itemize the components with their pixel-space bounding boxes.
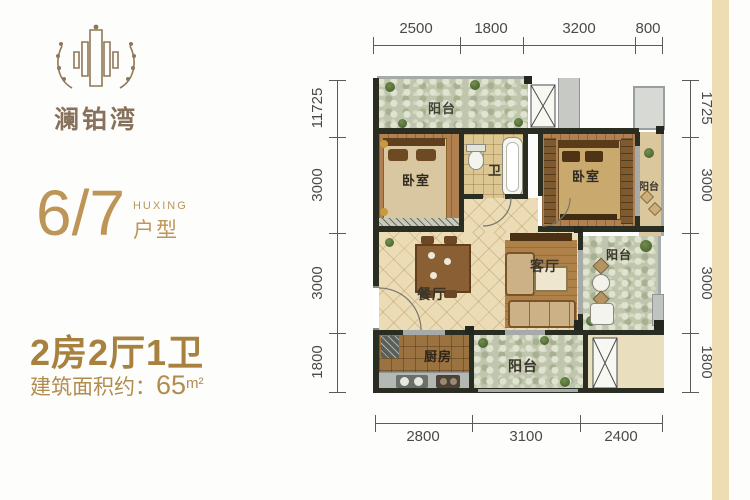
- dim-left-2: 3000: [309, 155, 327, 215]
- bed-headboard: [558, 140, 619, 148]
- wall: [445, 330, 505, 335]
- column: [524, 76, 532, 84]
- wall: [469, 334, 474, 392]
- dim-top-4: 800: [618, 20, 678, 38]
- unit-type-heading: 6/7 HUXING 户型: [36, 178, 188, 248]
- wall: [578, 232, 583, 250]
- plate-icon: [444, 258, 451, 265]
- wall: [523, 134, 528, 198]
- dim-line-left: [337, 80, 338, 392]
- pillow-icon: [585, 151, 603, 162]
- wall: [538, 134, 543, 196]
- plant-icon: [514, 118, 523, 127]
- sofa-icon: [508, 300, 576, 328]
- balcony-right-rail: [661, 132, 664, 236]
- wall: [635, 216, 640, 232]
- burner: [440, 378, 447, 385]
- room-label-balcony-right: 阳台: [639, 178, 659, 193]
- dim-bottom-1: 2800: [393, 428, 453, 446]
- lamp-icon: [380, 208, 388, 216]
- room-label-bath: 卫: [488, 160, 502, 179]
- pillow-icon: [416, 149, 436, 161]
- door-jamb: [373, 286, 379, 288]
- wall: [583, 334, 588, 392]
- area-value: 65: [156, 370, 186, 400]
- fridge-icon: [381, 336, 399, 358]
- unit-number: 6/7: [36, 178, 125, 248]
- dim-left-1: 11725: [309, 78, 327, 138]
- sink-bowl: [414, 377, 423, 386]
- room-label-dining: 餐厅: [417, 284, 447, 304]
- dim-tick: [662, 415, 663, 432]
- column: [574, 320, 583, 330]
- dim-tick: [523, 37, 524, 54]
- area-unit: m²: [186, 375, 204, 392]
- dim-tick: [329, 333, 346, 334]
- pillow-icon: [388, 149, 408, 161]
- wall: [459, 134, 464, 228]
- room-label-balcony-bottom: 阳台: [508, 356, 538, 376]
- column: [656, 126, 664, 134]
- balcony-top-rail: [377, 76, 528, 79]
- chair-icon: [421, 236, 434, 244]
- dim-top-1: 2500: [386, 20, 446, 38]
- dim-tick: [662, 37, 663, 54]
- wall: [545, 330, 664, 335]
- dim-tick: [329, 137, 346, 138]
- column: [654, 320, 664, 330]
- tv-console-icon: [510, 233, 572, 241]
- plate-icon: [428, 252, 435, 259]
- dim-tick: [682, 392, 699, 393]
- brand-logo-icon: [48, 22, 144, 100]
- dim-left-4: 1800: [309, 332, 327, 392]
- plant-icon: [385, 238, 394, 247]
- wall: [463, 194, 483, 199]
- wall: [373, 128, 560, 134]
- wall: [538, 226, 664, 232]
- room-label-kitchen: 厨房: [424, 346, 452, 365]
- door-jamb: [373, 328, 379, 330]
- plant-icon: [470, 80, 480, 90]
- plant-icon: [398, 119, 407, 128]
- wall: [635, 132, 640, 146]
- column: [574, 226, 583, 233]
- dim-tick: [329, 80, 346, 81]
- shower-tray: [590, 303, 614, 325]
- wardrobe-icon: [544, 138, 556, 224]
- window: [578, 250, 583, 314]
- dim-line-top: [373, 45, 662, 46]
- dim-left-3: 3000: [309, 253, 327, 313]
- dim-tick: [580, 415, 581, 432]
- dim-tick: [460, 37, 461, 54]
- unit-label-cn: 户型: [133, 214, 188, 244]
- window: [635, 146, 640, 216]
- plant-icon: [478, 338, 488, 348]
- room-label-living: 客厅: [530, 256, 560, 276]
- dim-line-right: [690, 80, 691, 392]
- room-label-bedroom-left: 卧室: [402, 170, 430, 189]
- bed-bench: [560, 214, 617, 220]
- wall: [373, 78, 379, 392]
- pillow-icon: [562, 151, 580, 162]
- column: [465, 326, 474, 335]
- area-line: 建筑面积约：65m²: [30, 370, 204, 401]
- wall: [373, 330, 403, 335]
- dim-top-2: 1800: [461, 20, 521, 38]
- dim-tick: [373, 37, 374, 54]
- plant-icon: [560, 377, 570, 387]
- rooms-summary: 2房2厅1卫: [30, 324, 204, 376]
- dim-tick: [375, 415, 376, 432]
- plant-icon: [644, 148, 654, 158]
- plant-icon: [640, 240, 652, 252]
- bathtub-inner: [506, 142, 519, 192]
- shaft-flue-icon: [530, 84, 556, 128]
- side-stripe: [712, 0, 729, 500]
- chair-icon: [444, 236, 457, 244]
- dim-bottom-3: 2400: [591, 428, 651, 446]
- plant-icon: [540, 336, 549, 345]
- room-label-balcony-garden: 阳台: [606, 246, 632, 263]
- dim-tick: [682, 233, 699, 234]
- room-label-balcony-top: 阳台: [428, 98, 456, 117]
- dim-tick: [329, 392, 346, 393]
- entry-opening: [373, 288, 379, 328]
- burner: [450, 378, 457, 385]
- ac-platform: [633, 86, 665, 130]
- wall: [505, 194, 528, 199]
- sink-bowl: [400, 377, 409, 386]
- balcony-bottom-rail: [478, 389, 578, 392]
- balcony-door: [505, 330, 545, 335]
- plate-icon: [430, 272, 437, 279]
- dim-line-bottom: [375, 423, 662, 424]
- lamp-icon: [380, 140, 388, 148]
- wall: [556, 128, 639, 134]
- plant-icon: [385, 82, 395, 92]
- dim-top-3: 3200: [549, 20, 609, 38]
- toilet-tank: [466, 144, 486, 152]
- dim-tick: [329, 233, 346, 234]
- duct-ledge: [558, 78, 580, 132]
- dim-tick: [635, 37, 636, 54]
- room-label-bedroom-right: 卧室: [572, 166, 600, 185]
- garden-table-icon: [592, 274, 610, 292]
- toilet-icon: [468, 150, 484, 170]
- wall: [373, 226, 464, 232]
- shaft-flue-icon: [592, 337, 618, 389]
- dim-bottom-2: 3100: [496, 428, 556, 446]
- wardrobe-icon: [621, 138, 633, 224]
- unit-label-en: HUXING: [133, 200, 188, 212]
- area-prefix: 建筑面积约：: [30, 376, 156, 399]
- dim-tick: [472, 415, 473, 432]
- brand-name: 澜铂湾: [40, 100, 152, 136]
- hallway: [463, 198, 538, 232]
- bed-headboard: [383, 138, 445, 146]
- floorplan-poster: 澜铂湾 6/7 HUXING 户型 2房2厅1卫 建筑面积约：65m² 2500…: [0, 0, 750, 500]
- sliding-door: [403, 330, 445, 335]
